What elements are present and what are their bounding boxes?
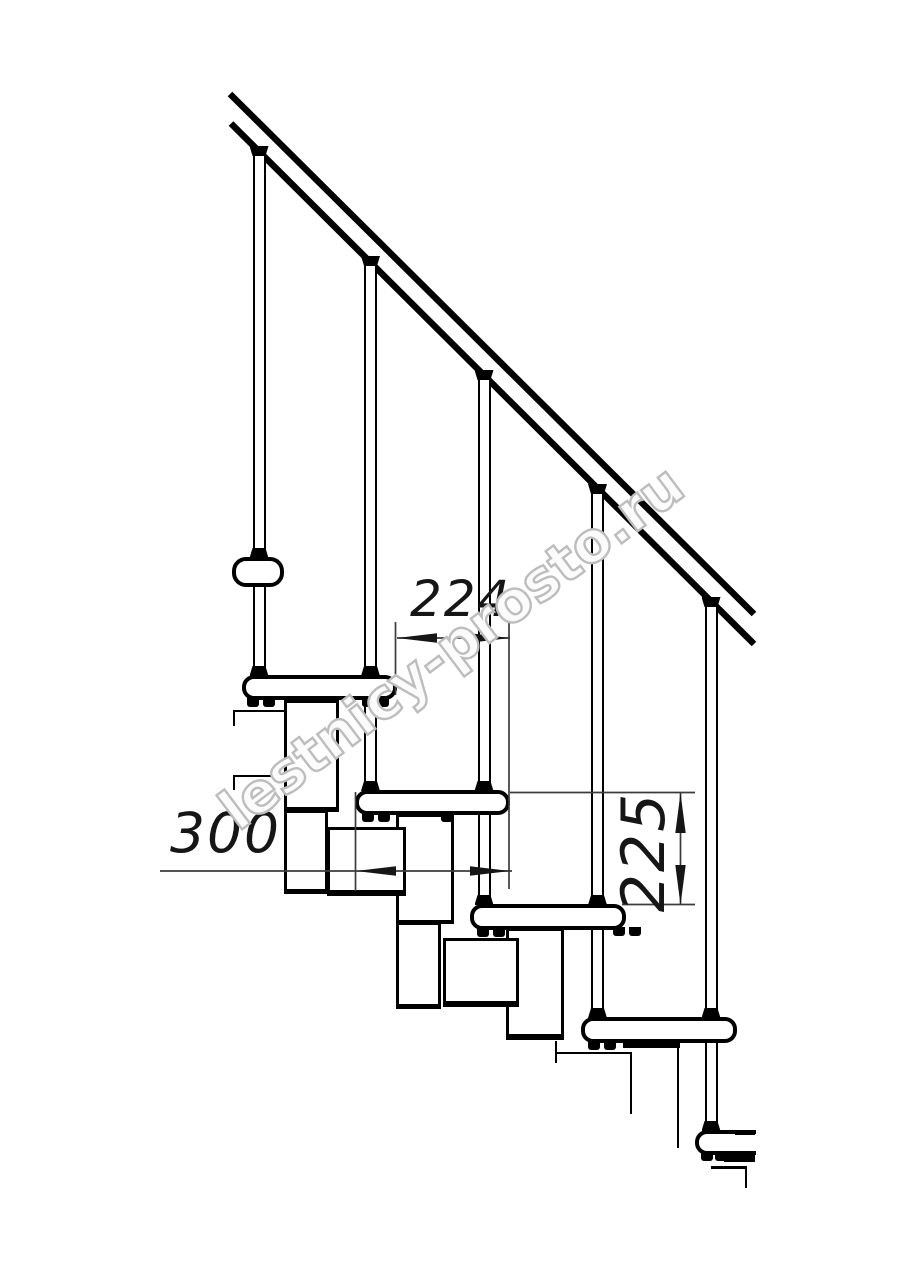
arrowhead-300-right <box>470 866 510 876</box>
arrowhead-300-left <box>356 866 396 876</box>
dim-label-step-rise: 225 <box>614 792 674 913</box>
staircase-technical-drawing: 224 300 225 lestnicy-prosto.ru <box>0 0 914 1280</box>
